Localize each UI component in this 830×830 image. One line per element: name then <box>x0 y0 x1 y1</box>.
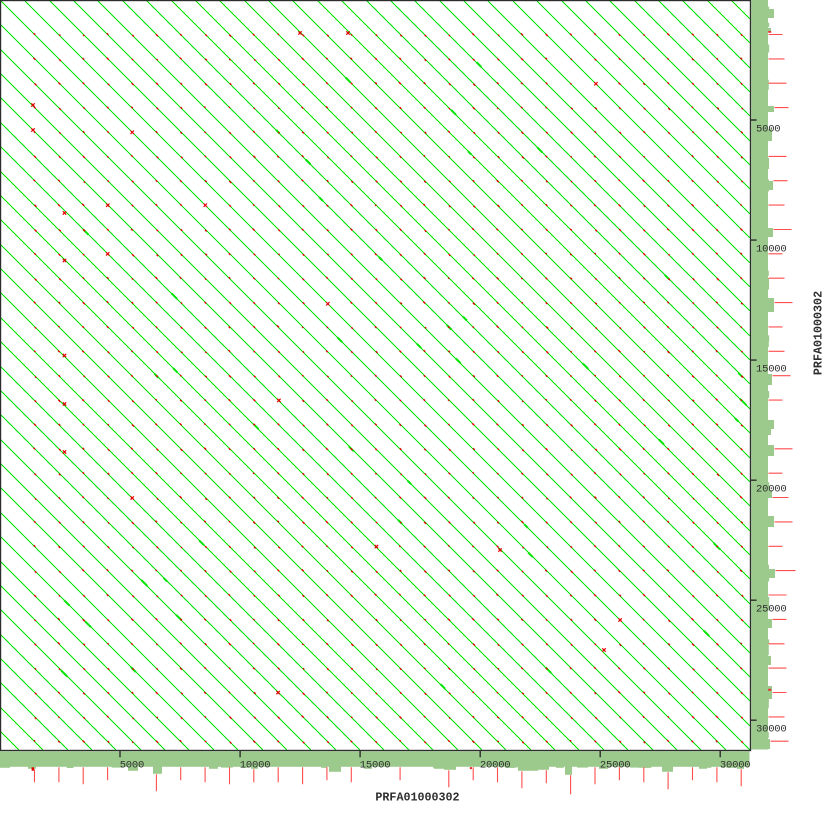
svg-text:PRFA01000302: PRFA01000302 <box>812 291 826 375</box>
svg-text:20000: 20000 <box>756 484 787 496</box>
svg-text:5000: 5000 <box>120 759 144 771</box>
svg-text:15000: 15000 <box>756 364 787 376</box>
svg-text:15000: 15000 <box>360 759 391 771</box>
svg-text:25000: 25000 <box>756 604 787 616</box>
svg-text:20000: 20000 <box>480 759 511 771</box>
svg-text:30000: 30000 <box>756 724 787 736</box>
svg-text:5000: 5000 <box>756 123 780 135</box>
svg-text:30000: 30000 <box>720 759 751 771</box>
svg-text:10000: 10000 <box>756 244 787 256</box>
svg-text:25000: 25000 <box>600 759 631 771</box>
svg-text:PRFA01000302: PRFA01000302 <box>375 791 459 805</box>
svg-text:10000: 10000 <box>240 759 271 771</box>
